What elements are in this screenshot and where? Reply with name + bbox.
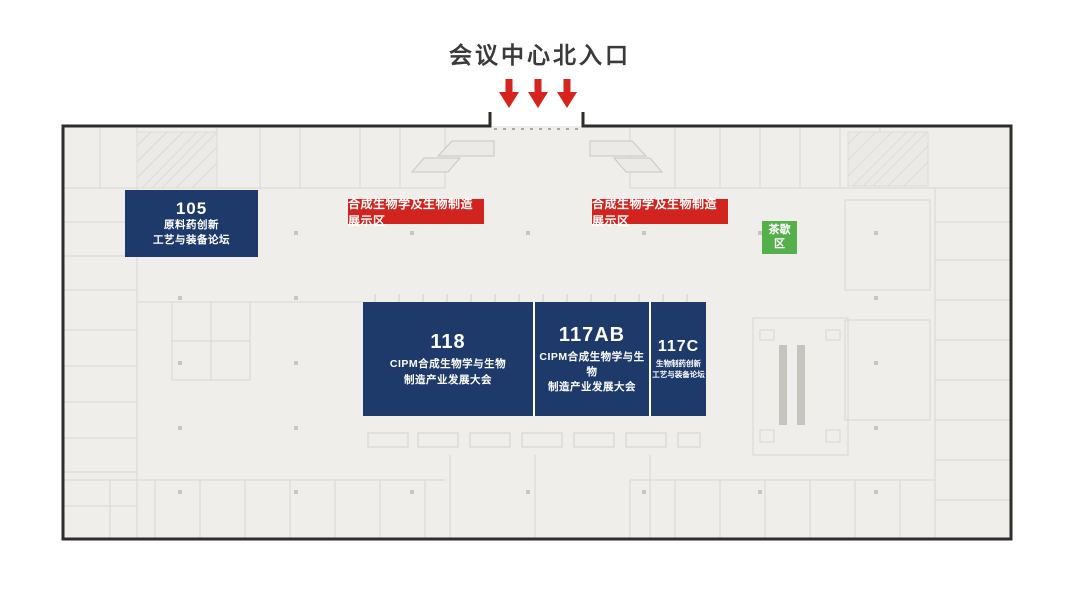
entrance-arrows [492,79,584,109]
room-name-line: 工艺与装备论坛 [652,370,705,381]
room-number: 105 [176,199,207,219]
room-105: 105 原料药创新 工艺与装备论坛 [125,190,258,257]
down-arrow-icon [528,79,548,108]
banner-exhibit-area-right: 合成生物学及生物制造展示区 [592,199,728,224]
down-arrow-icon [557,79,577,108]
room-number: 118 [430,330,465,354]
down-arrow-icon [499,79,519,108]
tea-break-line: 茶歇 [769,224,791,237]
room-number: 117C [658,337,699,356]
hall-117ab: 117AB CIPM合成生物学与生物 制造产业发展大会 [535,302,649,416]
hall-block: 118 CIPM合成生物学与生物 制造产业发展大会 117AB CIPM合成生物… [363,302,706,416]
room-name-line: 原料药创新 [164,218,219,233]
plan-hatched-room-right [848,132,928,186]
room-name-line: 生物制药创新 [656,359,701,370]
room-name-line: CIPM合成生物学与生物 [390,357,506,372]
page-title: 会议中心北入口 [0,36,1080,70]
plan-hatched-room-left [137,132,217,188]
room-name-line: 制造产业发展大会 [404,373,492,388]
hall-117c: 117C 生物制药创新 工艺与装备论坛 [651,302,706,416]
banner-exhibit-area-left: 合成生物学及生物制造展示区 [348,199,484,224]
room-name-line: 制造产业发展大会 [548,380,636,395]
tea-break-area: 茶歇 区 [762,221,797,254]
tea-break-line: 区 [774,238,785,251]
room-name-line: CIPM合成生物学与生物 [535,350,649,380]
room-name-line: 工艺与装备论坛 [153,233,230,248]
venue-floor-plan-page: 会议中心北入口 105 原料药创新 工艺与装备论坛 合成生物学及生物制造展示区 … [0,0,1080,600]
room-number: 117AB [559,323,625,347]
hall-118: 118 CIPM合成生物学与生物 制造产业发展大会 [363,302,533,416]
